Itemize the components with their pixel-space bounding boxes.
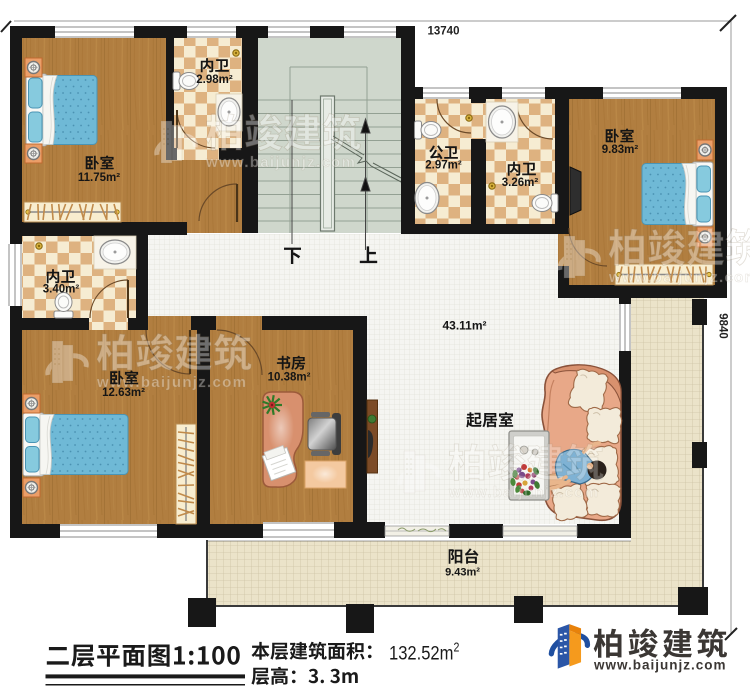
svg-text:www.baijunjz.com: www.baijunjz.com <box>448 484 599 501</box>
svg-text:11.75m²: 11.75m² <box>78 172 120 184</box>
svg-text:www.baijunjz.com: www.baijunjz.com <box>593 658 727 673</box>
svg-text:10.38m²: 10.38m² <box>268 372 311 384</box>
svg-text:www.baijunjz.com: www.baijunjz.com <box>205 154 356 171</box>
svg-text:12.63m²: 12.63m² <box>102 387 145 399</box>
svg-text:2.97m²: 2.97m² <box>425 160 462 172</box>
svg-text:13740: 13740 <box>428 26 460 38</box>
svg-text:132.52m2: 132.52m2 <box>389 641 459 664</box>
svg-text:3.40m²: 3.40m² <box>43 284 80 296</box>
svg-text:43.11m²: 43.11m² <box>442 319 486 333</box>
svg-text:9.43m²: 9.43m² <box>445 567 480 579</box>
svg-text:3.26m²: 3.26m² <box>502 177 539 189</box>
svg-text:2.98m²: 2.98m² <box>196 74 233 86</box>
svg-text:9840: 9840 <box>717 313 729 339</box>
svg-text:9.83m²: 9.83m² <box>602 144 639 156</box>
svg-text:www.baijunjz.com: www.baijunjz.com <box>608 269 750 286</box>
